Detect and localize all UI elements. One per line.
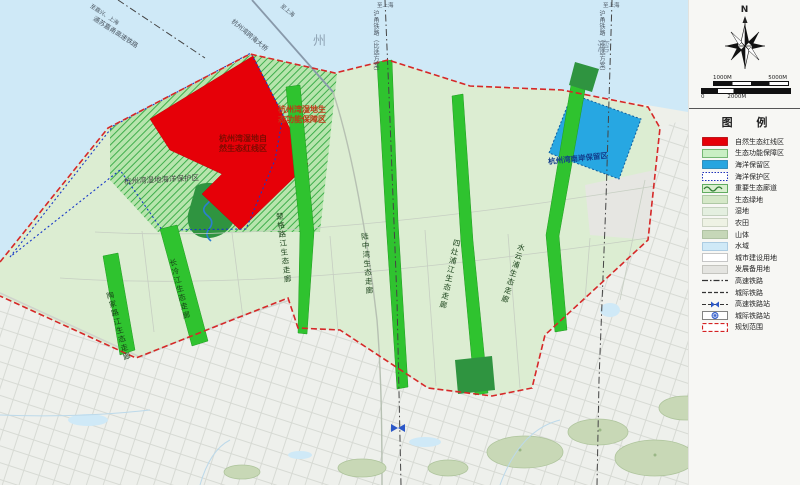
legend-item: 山体: [689, 229, 800, 241]
legend-item: 湿地: [689, 206, 800, 218]
legend-item: 生态功能保障区: [689, 148, 800, 160]
legend-item: 农田: [689, 217, 800, 229]
legend-label: 规划范围: [735, 322, 763, 332]
legend-swatch-solid: [702, 160, 728, 169]
scale-bar-upper: [713, 81, 789, 86]
scale-bar: 1000M 5000M 0 2000M: [689, 75, 800, 101]
legend-swatch-solid: [702, 230, 728, 239]
legend-swatch-solid: [702, 218, 728, 227]
legend-swatch-solid: [702, 137, 728, 146]
legend-label: 生态绿地: [735, 195, 763, 205]
compass-rose-icon: [722, 15, 768, 73]
legend-label: 海洋保护区: [735, 172, 770, 182]
scale-2000m: 2000M: [727, 94, 746, 100]
legend-item: 高速铁路站: [689, 298, 800, 310]
legend-swatch-solid: [702, 265, 728, 274]
legend-label: 发展备用地: [735, 264, 770, 274]
legend-item: 水域: [689, 240, 800, 252]
legend-swatch-red-dash: [702, 323, 728, 332]
legend-swatch-solid: [702, 253, 728, 262]
legend-swatch-solid: [702, 195, 728, 204]
legend-item: 规划范围: [689, 322, 800, 334]
legend-item: 城际铁路站: [689, 310, 800, 322]
legend-swatch-dotted: [702, 172, 728, 181]
legend-swatch-hsr-station: [702, 300, 728, 309]
legend-swatch-dash: [702, 288, 728, 297]
legend-label: 城际铁路: [735, 288, 763, 298]
legend-label: 高速铁路站: [735, 299, 770, 309]
legend-label: 城市建设用地: [735, 253, 777, 263]
legend-label: 高速铁路: [735, 276, 763, 286]
planning-map-page: 州 湾 杭州湾湿地自 然生态红线区 杭州湾湿地生 态功能保障区 杭州湾湿地海洋保…: [0, 0, 800, 485]
map-canvas: [0, 0, 688, 485]
legend-item: 城际铁路: [689, 287, 800, 299]
scale-1000m: 1000M: [713, 75, 732, 81]
legend-label: 重要生态廊道: [735, 183, 777, 193]
legend-item: 城市建设用地: [689, 252, 800, 264]
legend-title: 图 例: [689, 114, 800, 130]
green-block-south: [455, 356, 495, 394]
legend-item: 海洋保护区: [689, 171, 800, 183]
legend-item: 海洋保留区: [689, 159, 800, 171]
north-label: N: [689, 5, 800, 15]
legend-item: 生态绿地: [689, 194, 800, 206]
legend-swatch-solid: [702, 242, 728, 251]
legend-label: 山体: [735, 230, 749, 240]
legend-swatch-solid: [702, 149, 728, 158]
legend-label: 城际铁路站: [735, 311, 770, 321]
legend-item: 重要生态廊道: [689, 182, 800, 194]
scale-0: 0: [701, 94, 705, 100]
legend-swatch-dashdot: [702, 276, 728, 285]
scale-5000m: 5000M: [768, 75, 787, 81]
legend-items: 自然生态红线区生态功能保障区海洋保留区海洋保护区重要生态廊道生态绿地湿地农田山体…: [689, 136, 800, 333]
legend-label: 水域: [735, 241, 749, 251]
panel-divider: [689, 108, 800, 109]
legend-swatch-solid: [702, 207, 728, 216]
legend-label: 农田: [735, 218, 749, 228]
legend-item: 发展备用地: [689, 264, 800, 276]
legend-label: 湿地: [735, 206, 749, 216]
legend-swatch-wave: [702, 184, 728, 193]
legend-label: 海洋保留区: [735, 160, 770, 170]
legend-swatch-icr-station: [702, 311, 728, 320]
legend-panel: N 1000M 5000M 0: [688, 0, 800, 485]
legend-label: 自然生态红线区: [735, 137, 784, 147]
legend-label: 生态功能保障区: [735, 148, 784, 158]
legend-item: 自然生态红线区: [689, 136, 800, 148]
legend-item: 高速铁路: [689, 275, 800, 287]
